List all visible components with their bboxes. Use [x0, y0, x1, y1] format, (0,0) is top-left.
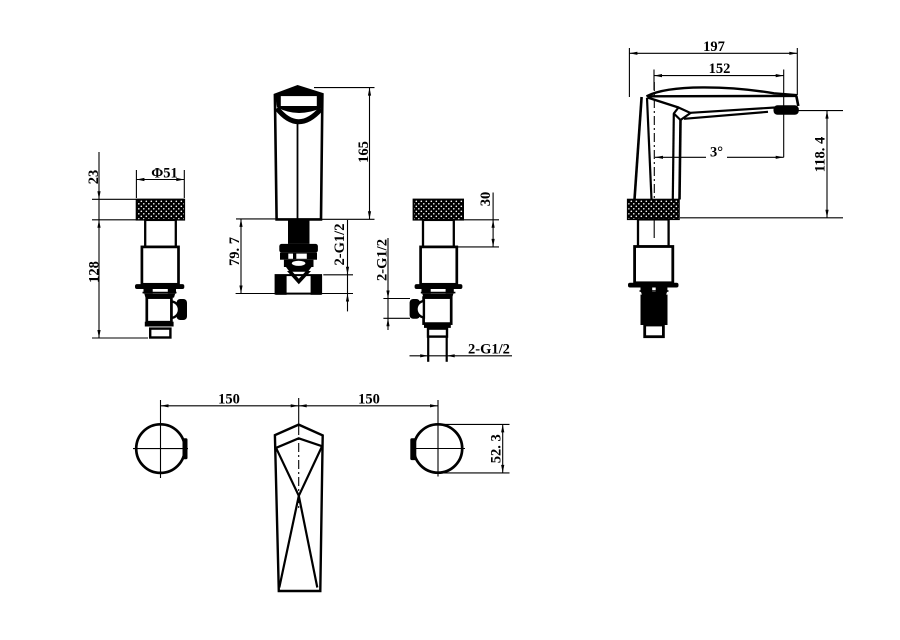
svg-text:128: 128	[87, 261, 103, 283]
svg-text:30: 30	[478, 192, 494, 207]
svg-text:Φ51: Φ51	[151, 166, 178, 182]
svg-text:3°: 3°	[710, 145, 723, 161]
svg-text:2-G1/2: 2-G1/2	[375, 239, 391, 281]
svg-text:118. 4: 118. 4	[813, 137, 829, 172]
svg-text:52. 3: 52. 3	[489, 434, 505, 463]
svg-text:197: 197	[703, 39, 725, 55]
svg-text:2-G1/2: 2-G1/2	[332, 224, 348, 266]
svg-text:150: 150	[358, 391, 380, 407]
svg-text:2-G1/2: 2-G1/2	[468, 342, 510, 358]
svg-text:165: 165	[356, 141, 372, 163]
svg-text:152: 152	[709, 61, 731, 77]
svg-text:79. 7: 79. 7	[227, 237, 243, 266]
svg-text:23: 23	[86, 170, 102, 185]
svg-text:150: 150	[218, 391, 240, 407]
